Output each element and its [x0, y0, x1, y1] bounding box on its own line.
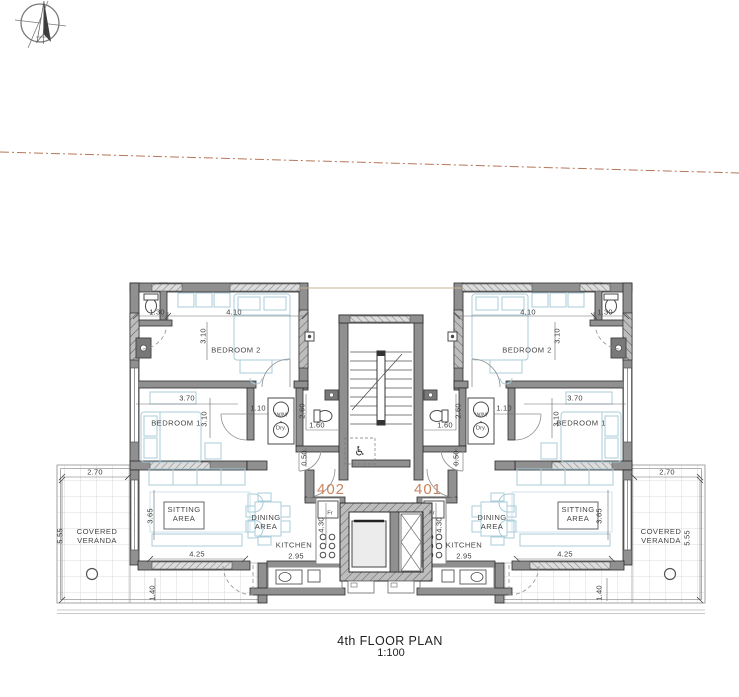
north-arrow-icon: [15, 1, 66, 48]
plan-scale: 1:100: [377, 647, 405, 659]
plan-title: 4th FLOOR PLAN: [337, 634, 443, 648]
site-boundary-line: [0, 152, 739, 173]
floor-plan-page: 1.304.103.103.703.101.102.601.600.502.70…: [0, 0, 739, 697]
floor-plan-drawing: [0, 0, 739, 697]
